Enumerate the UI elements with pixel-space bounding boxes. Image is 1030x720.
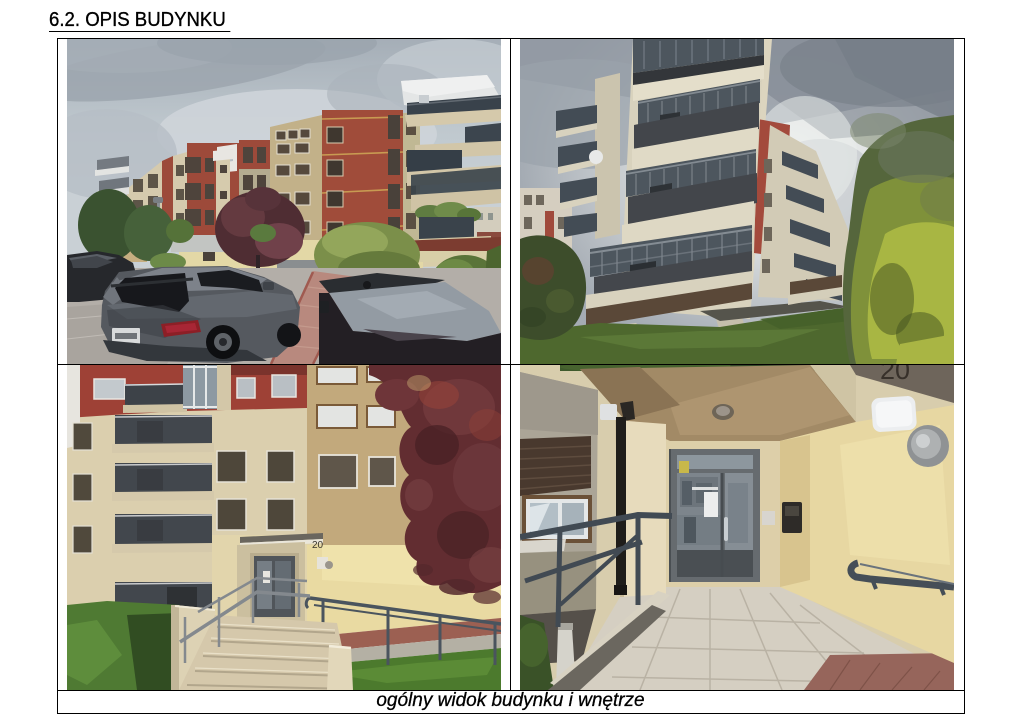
svg-text:20: 20 [880,365,910,385]
svg-text:20: 20 [312,540,324,551]
